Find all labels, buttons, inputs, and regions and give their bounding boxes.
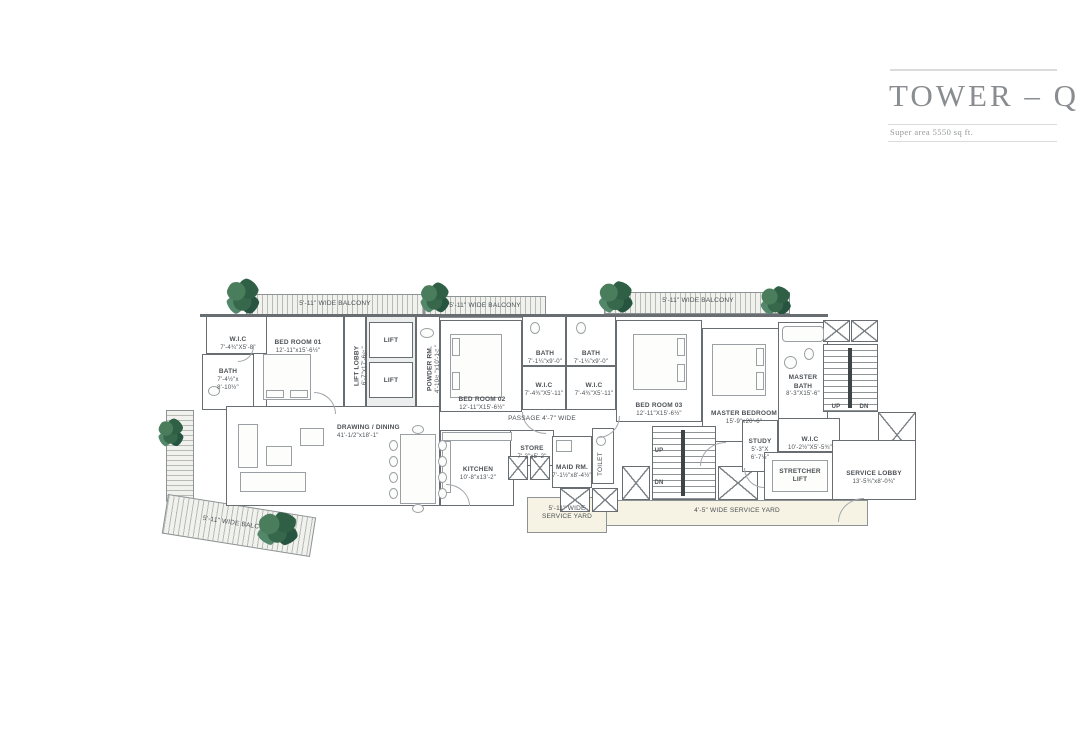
plant-icon [158, 418, 184, 448]
coffee-table [266, 446, 292, 466]
armchair [300, 428, 324, 446]
shaft-box [851, 320, 878, 342]
bed-room-03-label: BED ROOM 03 12'-11"X15'-6½" [614, 394, 704, 427]
drawing-dining-label: DRAWING / DINING 41'-1/2"x18'-1" [337, 416, 429, 449]
lift-1-label: LIFT [378, 337, 404, 345]
stair-rail [848, 348, 852, 408]
stretcher-lift-label: STRETCHER LIFT [764, 468, 836, 485]
shaft-box [622, 466, 650, 500]
shaft-box [823, 320, 850, 342]
service-yard-left-label: 5'-11" WIDE SERVICE YARD [526, 505, 608, 522]
balcony-top-left-label: 5'-11" WIDE BALCONY [248, 300, 422, 308]
toilet-fixture [804, 348, 814, 360]
stair-rail [681, 430, 685, 496]
dining-chair [389, 472, 398, 483]
master-bath-label: MASTER BATH 8'-3"X15'-6" [780, 366, 826, 408]
pillow [677, 338, 685, 356]
wic-master-label: W.I.C 10'-2½"X5'-5¾" [781, 428, 839, 461]
bath-bed1-label: BATH 7'-4½"x 8'-10½" [206, 360, 250, 401]
balcony-top-right-label: 5'-11" WIDE BALCONY [608, 297, 788, 305]
floor-plan-page: TOWER – Q Super area 5550 sq ft. 5'-11" … [0, 0, 1087, 749]
dining-chair [412, 504, 424, 513]
title-rule-mid [888, 124, 1057, 125]
pillow [452, 338, 460, 356]
dining-chair [389, 456, 398, 467]
bath-bed3-label: BATH 7'-1¼"x9'-0" [568, 342, 614, 375]
pillow [756, 348, 764, 366]
powder-rm-label: POWDER RM. 4'-10½"x10'-1¼" [418, 330, 437, 408]
sofa [238, 424, 258, 468]
wic-bed2-label: W.I.C 7'-4¾"X5'-11" [520, 374, 568, 407]
dn-label-mid-stair: DN [648, 480, 670, 488]
up-label-top-stair: UP [826, 404, 846, 412]
passage-label: PASSAGE 4'-7" WIDE [494, 415, 590, 423]
up-label-mid-stair: UP [648, 448, 670, 456]
pillow [677, 364, 685, 382]
sofa [240, 472, 306, 492]
title-rule-bottom [888, 141, 1057, 142]
wic-bed3-label: W.I.C 7'-4¾"X5'-11" [570, 374, 618, 407]
bathtub [782, 326, 824, 342]
balcony-top-mid-label: 5'-11" WIDE BALCONY [426, 302, 544, 310]
toilet-fixture [576, 322, 586, 334]
title-rule-top [890, 69, 1057, 71]
dining-chair [438, 440, 447, 451]
plant-icon [226, 278, 260, 316]
bath-bed2-label: BATH 7'-1¼"x9'-0" [524, 342, 566, 375]
pillow [756, 372, 764, 390]
plant-icon [256, 512, 300, 546]
kitchen-label: KITCHEN 10'-8"x13'-2" [444, 458, 512, 491]
dn-label-top-stair: DN [854, 404, 874, 412]
maid-rm-label: MAID RM. 7'-1½"x8'-4½" [550, 456, 594, 489]
toilet-fixture [530, 322, 540, 334]
lift-lobby-label: LIFT LOBBY 6'-7"x17'-6½" [345, 328, 363, 404]
maid-bed [556, 440, 572, 452]
dining-chair [389, 488, 398, 499]
super-area-subtitle: Super area 5550 sq ft. [890, 127, 973, 137]
lift-2-label: LIFT [378, 377, 404, 385]
service-lobby-label: SERVICE LOBBY 13'-5¾"x8'-0¾" [834, 462, 914, 495]
store-label: STORE 7'-2"x5'-2" [509, 437, 555, 470]
pillow [266, 390, 284, 398]
study-label: STUDY 5'-3"X 6'-7½" [741, 430, 779, 471]
toilet-label: TOILET [597, 446, 609, 482]
pillow [290, 390, 308, 398]
service-yard-right-label: 4'-5" WIDE SERVICE YARD [608, 507, 866, 515]
tower-title: TOWER – Q [889, 78, 1079, 114]
kitchen-counter [442, 432, 512, 441]
bed-room-01-label: BED ROOM 01 12'-11"x15'-6½" [254, 331, 342, 364]
